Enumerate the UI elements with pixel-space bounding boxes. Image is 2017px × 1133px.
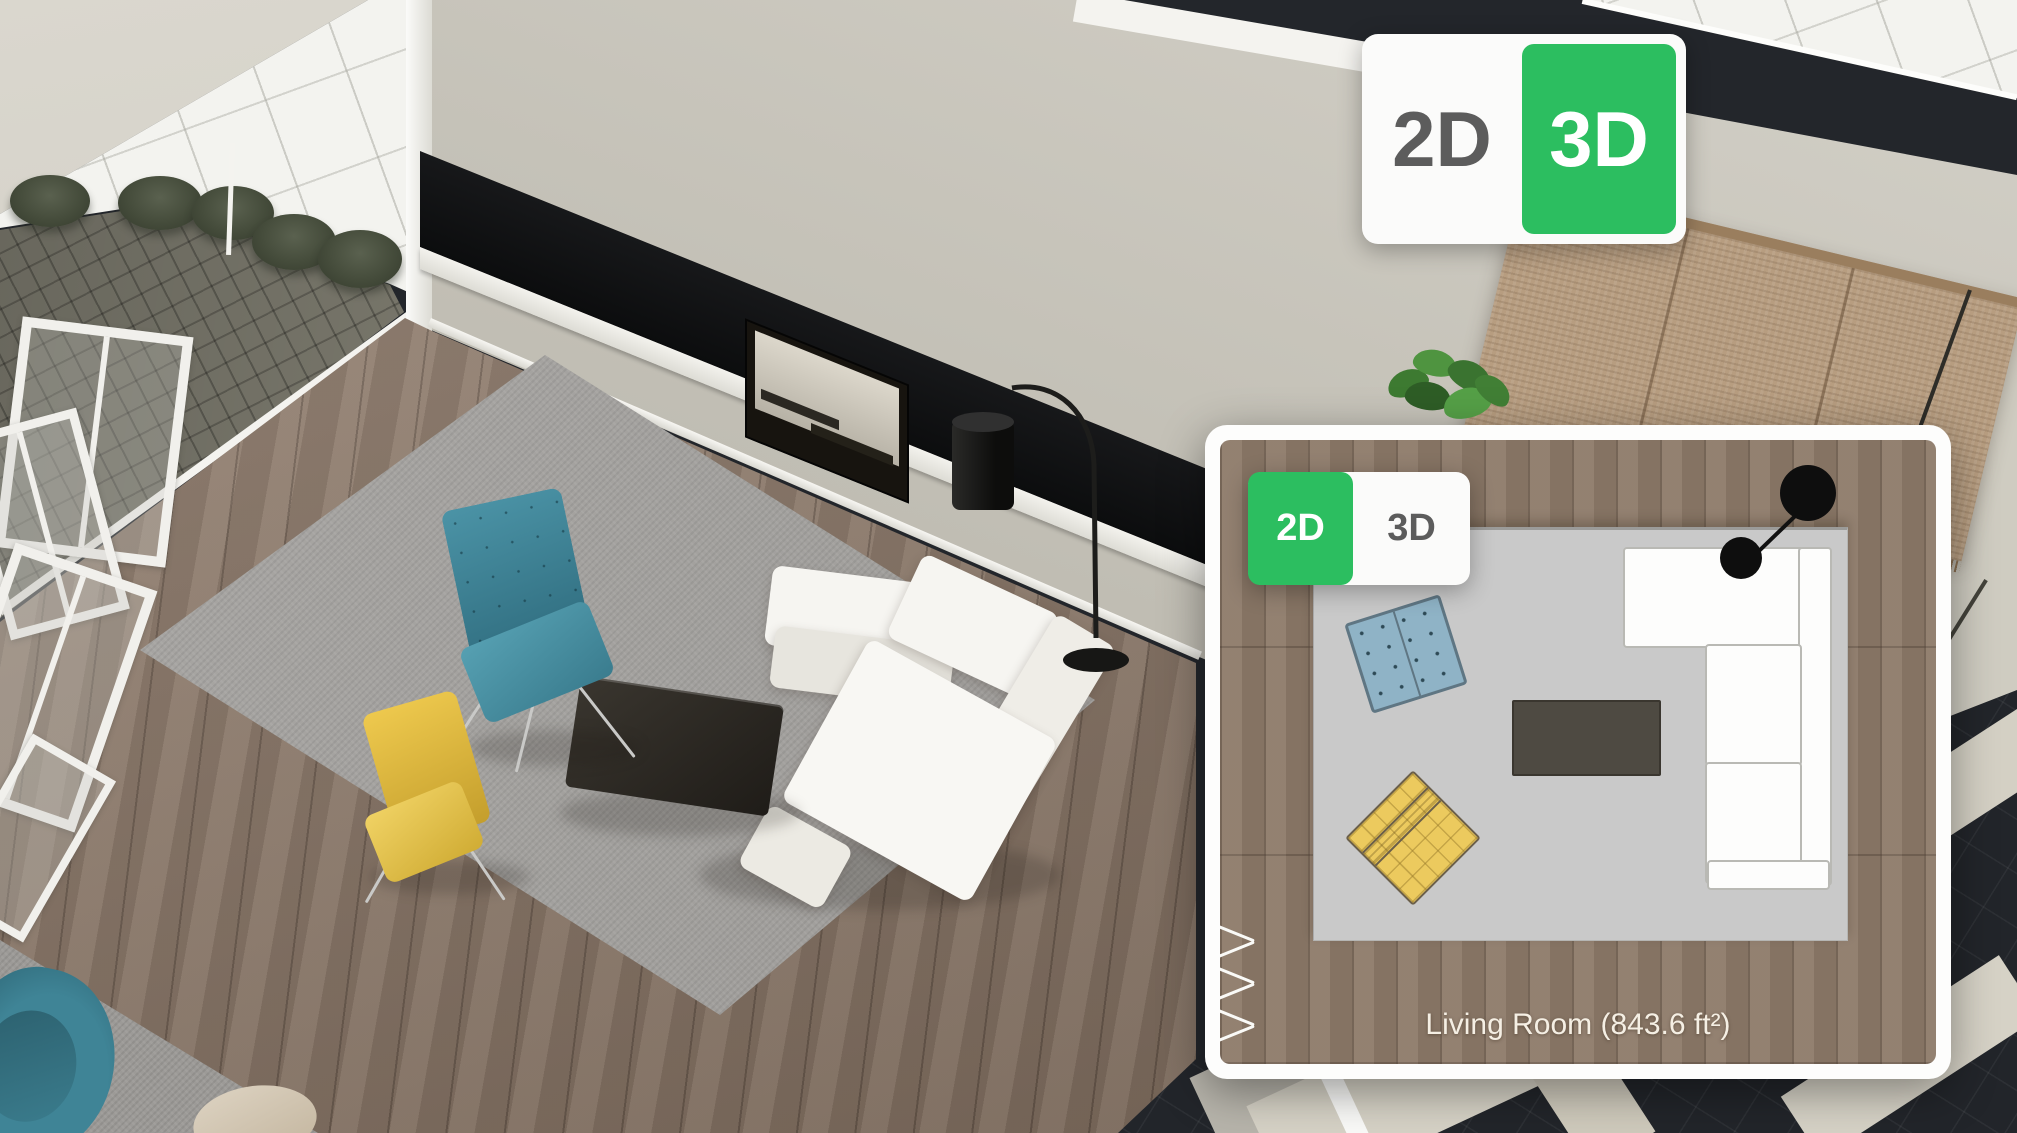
shrub[interactable] xyxy=(10,175,90,227)
plan-lamp-shade xyxy=(1780,465,1836,521)
minimap-3d-label: 3D xyxy=(1387,507,1436,550)
main-3d-button[interactable]: 3D xyxy=(1522,44,1676,234)
plan-sofa-seat xyxy=(1705,644,1802,766)
room-label: Living Room (843.6 ft²) xyxy=(1220,1008,1936,1042)
door-chevron-line xyxy=(1220,941,1255,963)
minimap-2d-button[interactable]: 2D xyxy=(1248,472,1353,585)
monstera-plant[interactable] xyxy=(1385,342,1515,422)
door-chevron-line xyxy=(1220,983,1255,1005)
minimap-3d-button[interactable]: 3D xyxy=(1353,472,1470,585)
plan-lamp-base xyxy=(1720,537,1762,579)
main-3d-label: 3D xyxy=(1549,94,1649,185)
main-view-toggle[interactable]: 2D 3D xyxy=(1362,34,1686,244)
floor-planner-app: Living Room (843.6 ft²) 2D 3D 2D 3D xyxy=(0,0,2017,1133)
main-2d-button[interactable]: 2D xyxy=(1362,34,1522,244)
tub-chair-seat xyxy=(0,1001,87,1130)
plan-sofa-armrest xyxy=(1707,860,1830,890)
minimap-view-toggle[interactable]: 2D 3D xyxy=(1248,472,1470,585)
plan-sofa-chaise xyxy=(1623,547,1804,648)
door-chevron-line xyxy=(1220,962,1255,984)
blue-chair-shadow xyxy=(470,730,640,766)
door-chevron-line xyxy=(1220,920,1255,942)
main-2d-label: 2D xyxy=(1392,94,1492,185)
plan-coffee-table[interactable] xyxy=(1512,700,1661,776)
shrub[interactable] xyxy=(318,230,402,288)
minimap-2d-label: 2D xyxy=(1276,507,1325,550)
plan-sofa-back xyxy=(1798,547,1832,886)
shrub[interactable] xyxy=(118,176,202,230)
minimap-panel[interactable]: Living Room (843.6 ft²) 2D 3D xyxy=(1205,425,1951,1079)
arc-floor-lamp[interactable] xyxy=(988,368,1158,698)
plan-chair-seam xyxy=(1393,611,1421,696)
